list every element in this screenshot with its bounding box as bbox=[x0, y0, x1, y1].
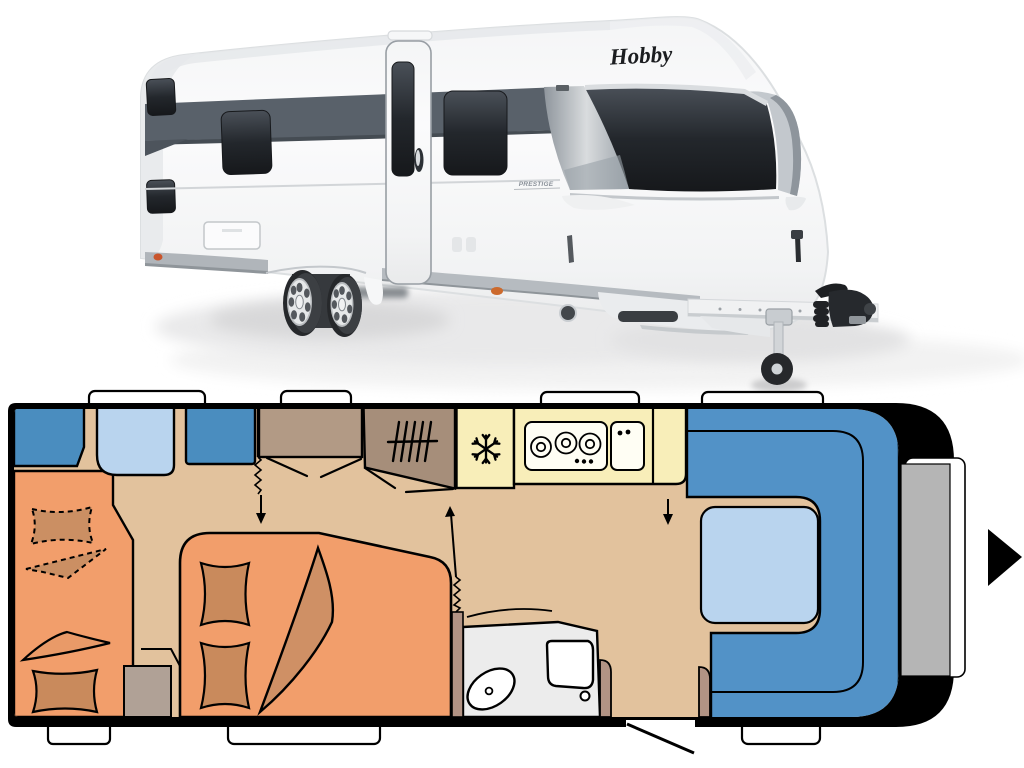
svg-text:PRESTIGE: PRESTIGE bbox=[519, 181, 554, 188]
svg-text:Hobby: Hobby bbox=[608, 41, 674, 69]
